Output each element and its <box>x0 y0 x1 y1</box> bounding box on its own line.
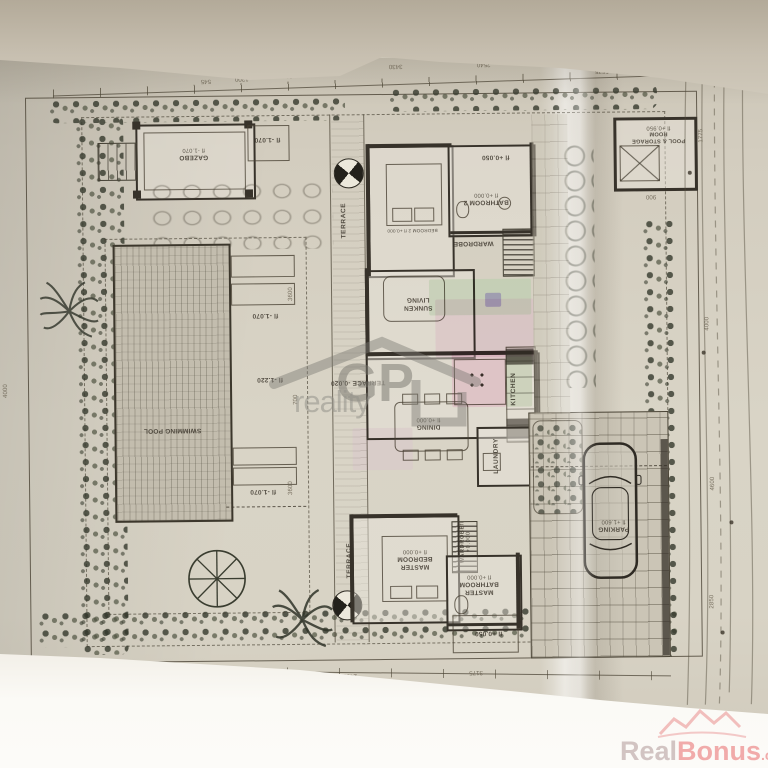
palm-tree-icon <box>37 279 102 344</box>
bedroom2-label: BEDROOM 2 fl +0.000 <box>386 227 438 233</box>
dim-label: 3600 <box>287 459 294 495</box>
dim-label: 4990 <box>159 662 193 669</box>
pillow <box>416 585 438 598</box>
dim-label: 2025 <box>269 72 303 79</box>
parking-label: PARKINGfl +1.600 <box>585 517 641 532</box>
master-bathroom-label: MASTER BATHROOMfl +0.000 <box>450 573 508 596</box>
dim-label: 2600 <box>249 667 281 674</box>
laundry-label: LAUNDRY <box>493 433 500 479</box>
wardrobe-closet <box>502 228 535 276</box>
dim-label: 5575 <box>585 68 619 75</box>
wardrobe-label: WARDROBE <box>446 239 500 247</box>
dim-label: 1200 <box>227 75 257 82</box>
dim-label: 2540 <box>467 61 501 68</box>
dim-label: 900 <box>638 193 664 200</box>
gp-reality-watermark: reality <box>294 384 370 420</box>
gazebo-label: GAZEBOfl -1.070 <box>147 146 239 162</box>
toilet <box>456 201 469 218</box>
toilet <box>454 595 468 614</box>
side-path-paving <box>531 114 570 414</box>
dimension-ticks-bottom <box>79 665 671 680</box>
dim-label: 3175 <box>461 669 491 676</box>
dim-label: 1200 <box>313 68 343 75</box>
floor-plan-photo: GAZEBOfl -1.070 fl -1.070 SWIMMING POOL … <box>0 0 768 768</box>
dim-label: 545 <box>191 78 221 85</box>
level-marker-box <box>247 125 289 161</box>
pillow <box>414 207 434 221</box>
highlight-tint <box>352 428 412 471</box>
gazebo-steps <box>97 143 137 181</box>
swimming-pool-label: SWIMMING POOL <box>128 426 216 435</box>
sink <box>498 197 511 210</box>
wall-segment <box>516 553 521 629</box>
pillow <box>392 208 412 222</box>
terrace-tree-icon <box>334 158 364 188</box>
sun-lounger <box>231 255 295 278</box>
dim-label: 4000 <box>2 362 9 398</box>
storage-cross-box <box>620 145 660 181</box>
gazebo-post <box>132 122 140 130</box>
dim-label: 3600 <box>287 265 294 301</box>
dim-label: 2400 <box>335 672 365 679</box>
realbonus-watermark: RealBonus.cz <box>620 736 768 767</box>
swimming-pool <box>113 244 234 523</box>
car-icon <box>579 439 642 582</box>
level-label: fl -1.070 <box>237 487 289 495</box>
sun-lounger <box>231 283 295 306</box>
realbonus-roofs-icon <box>656 704 748 740</box>
chair <box>425 449 441 460</box>
gazebo-post <box>133 191 141 199</box>
hedge-top-right <box>389 83 657 112</box>
highlight-tint <box>506 350 533 406</box>
terrace-label: TERRACE <box>340 194 348 246</box>
dim-label: 1775 <box>697 107 704 143</box>
dim-label: 3430 <box>379 63 413 70</box>
chair <box>447 449 463 460</box>
pillow <box>390 586 412 599</box>
level-label: fl -1.070 <box>239 311 291 319</box>
master-bedroom-label: MASTER BEDROOMfl +0.000 <box>386 547 444 570</box>
dim-label: 1325 <box>301 671 331 678</box>
highlight-tint <box>485 293 501 307</box>
dim-label: 4600 <box>709 455 716 491</box>
dim-label: 4000 <box>703 295 710 331</box>
road-lines <box>673 52 768 705</box>
dim-label: 2850 <box>708 573 715 609</box>
hall-level-label: fl +0.050 <box>468 153 524 161</box>
level-label: fl -1.070 <box>249 135 285 143</box>
entry-level-label: fl +0.050 <box>463 629 515 637</box>
